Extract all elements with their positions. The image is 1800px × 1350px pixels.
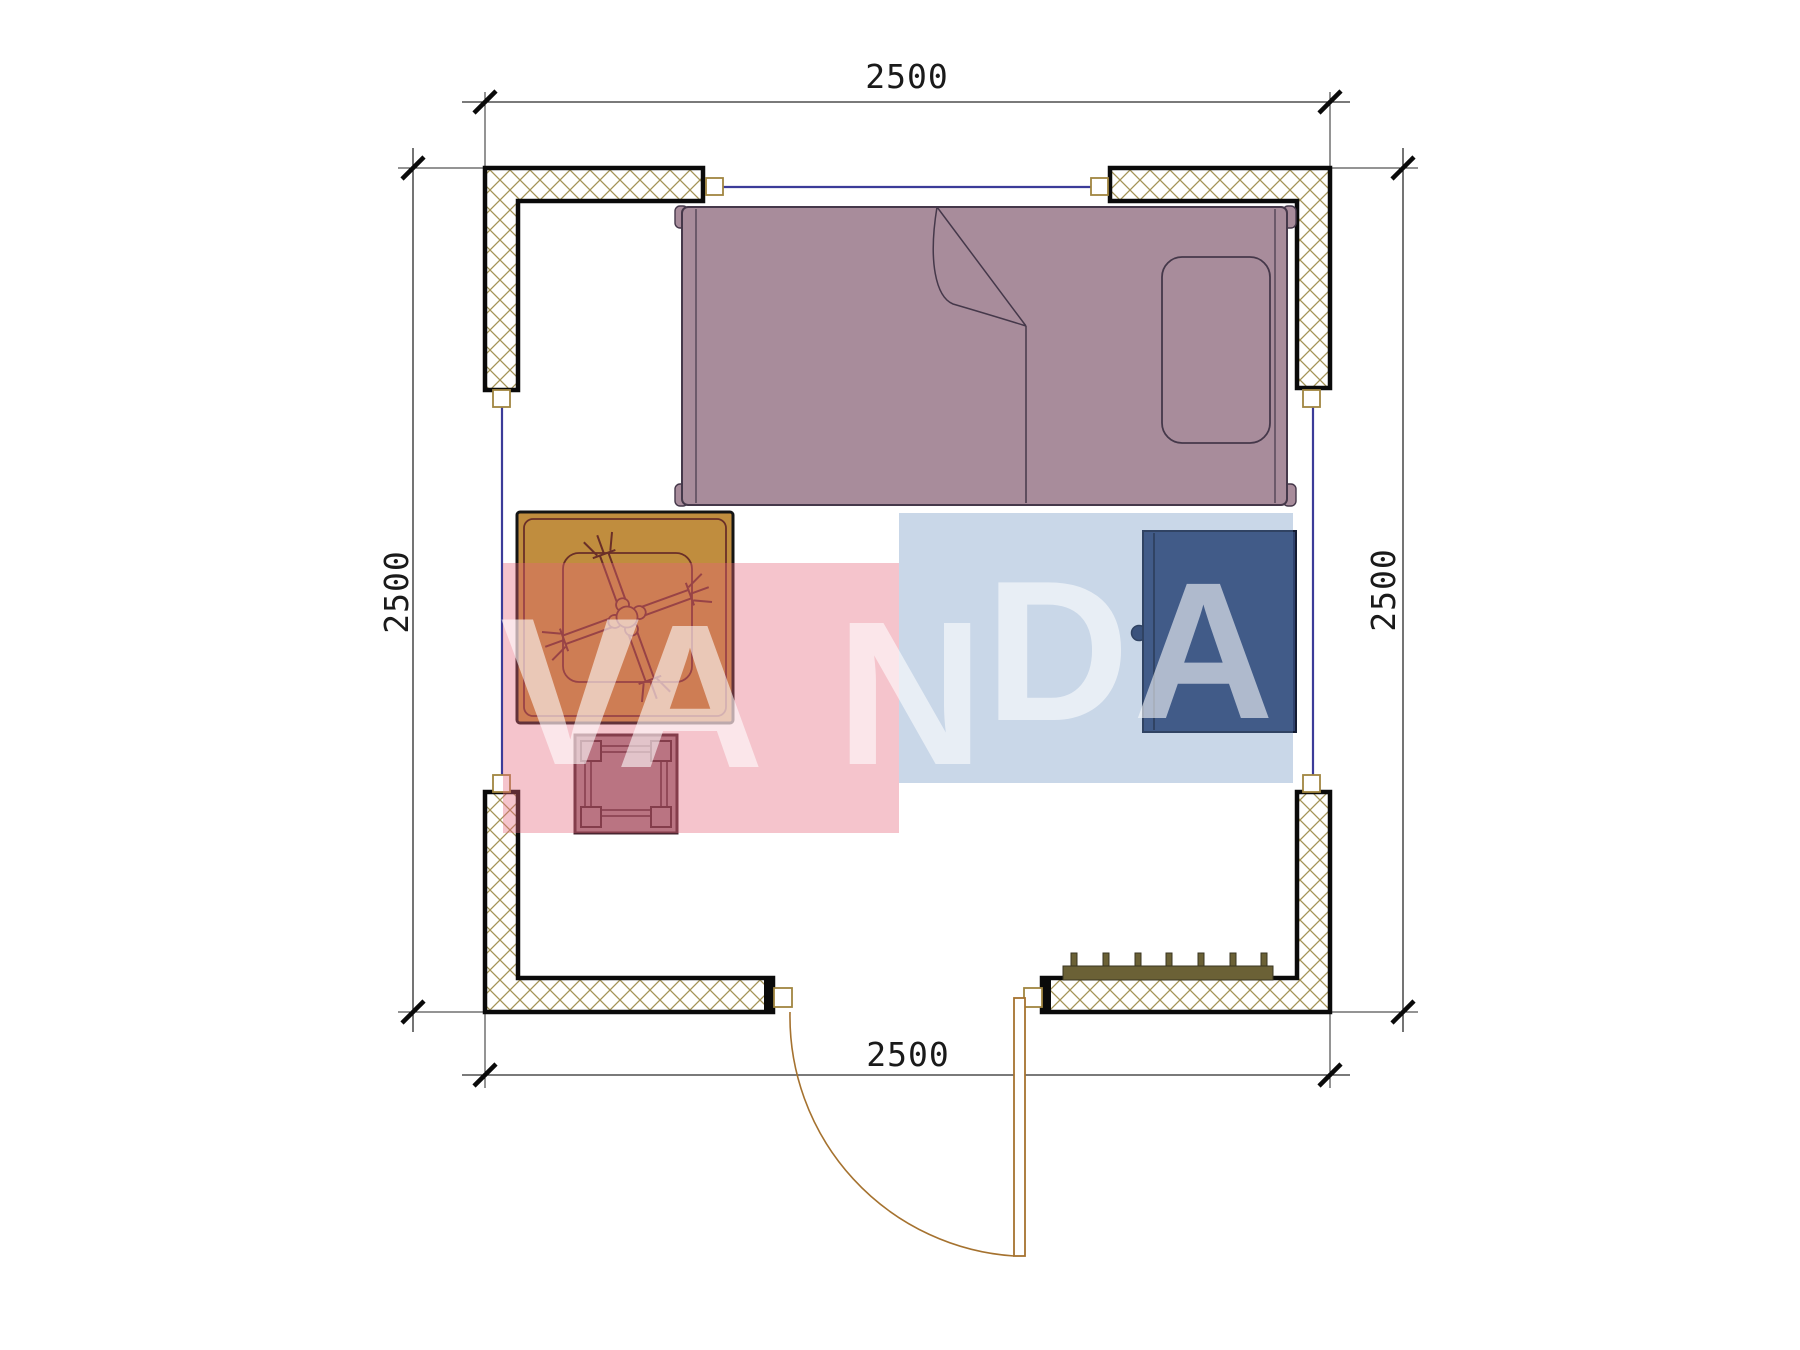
watermark-letter: A — [1133, 554, 1274, 749]
door-jamb-caps — [764, 976, 1051, 1014]
bed-pillow — [1162, 257, 1270, 443]
window-frame — [493, 390, 510, 407]
radiator-fin — [1135, 953, 1141, 966]
door-frame — [1024, 988, 1042, 1007]
dimension-label-right: 2500 — [1365, 525, 1403, 655]
dimension-label-left: 2500 — [378, 527, 416, 657]
floor-plan-page: V A N D A 2500 2500 2500 2500 — [0, 0, 1800, 1350]
window-frame — [1091, 178, 1108, 195]
radiator-fin — [1103, 953, 1109, 966]
bed — [675, 206, 1296, 506]
radiator-fin — [1261, 953, 1267, 966]
radiator-fin — [1071, 953, 1077, 966]
window-frame — [1303, 390, 1320, 407]
watermark-letter: N — [836, 591, 984, 796]
radiator-fin — [1166, 953, 1172, 966]
door-leaf — [1014, 998, 1025, 1256]
radiator-fin — [1198, 953, 1204, 966]
window-frame — [1303, 775, 1320, 792]
radiator — [1063, 953, 1273, 980]
wall-top-left — [485, 168, 703, 390]
watermark-letter: A — [616, 594, 764, 799]
dimension-label-bottom: 2500 — [843, 1036, 973, 1074]
radiator-fin — [1230, 953, 1236, 966]
window-frame — [706, 178, 723, 195]
dimension-label-top: 2500 — [842, 58, 972, 96]
door-frame — [774, 988, 792, 1007]
radiator-bar — [1063, 966, 1273, 980]
watermark-letter: D — [985, 552, 1129, 752]
